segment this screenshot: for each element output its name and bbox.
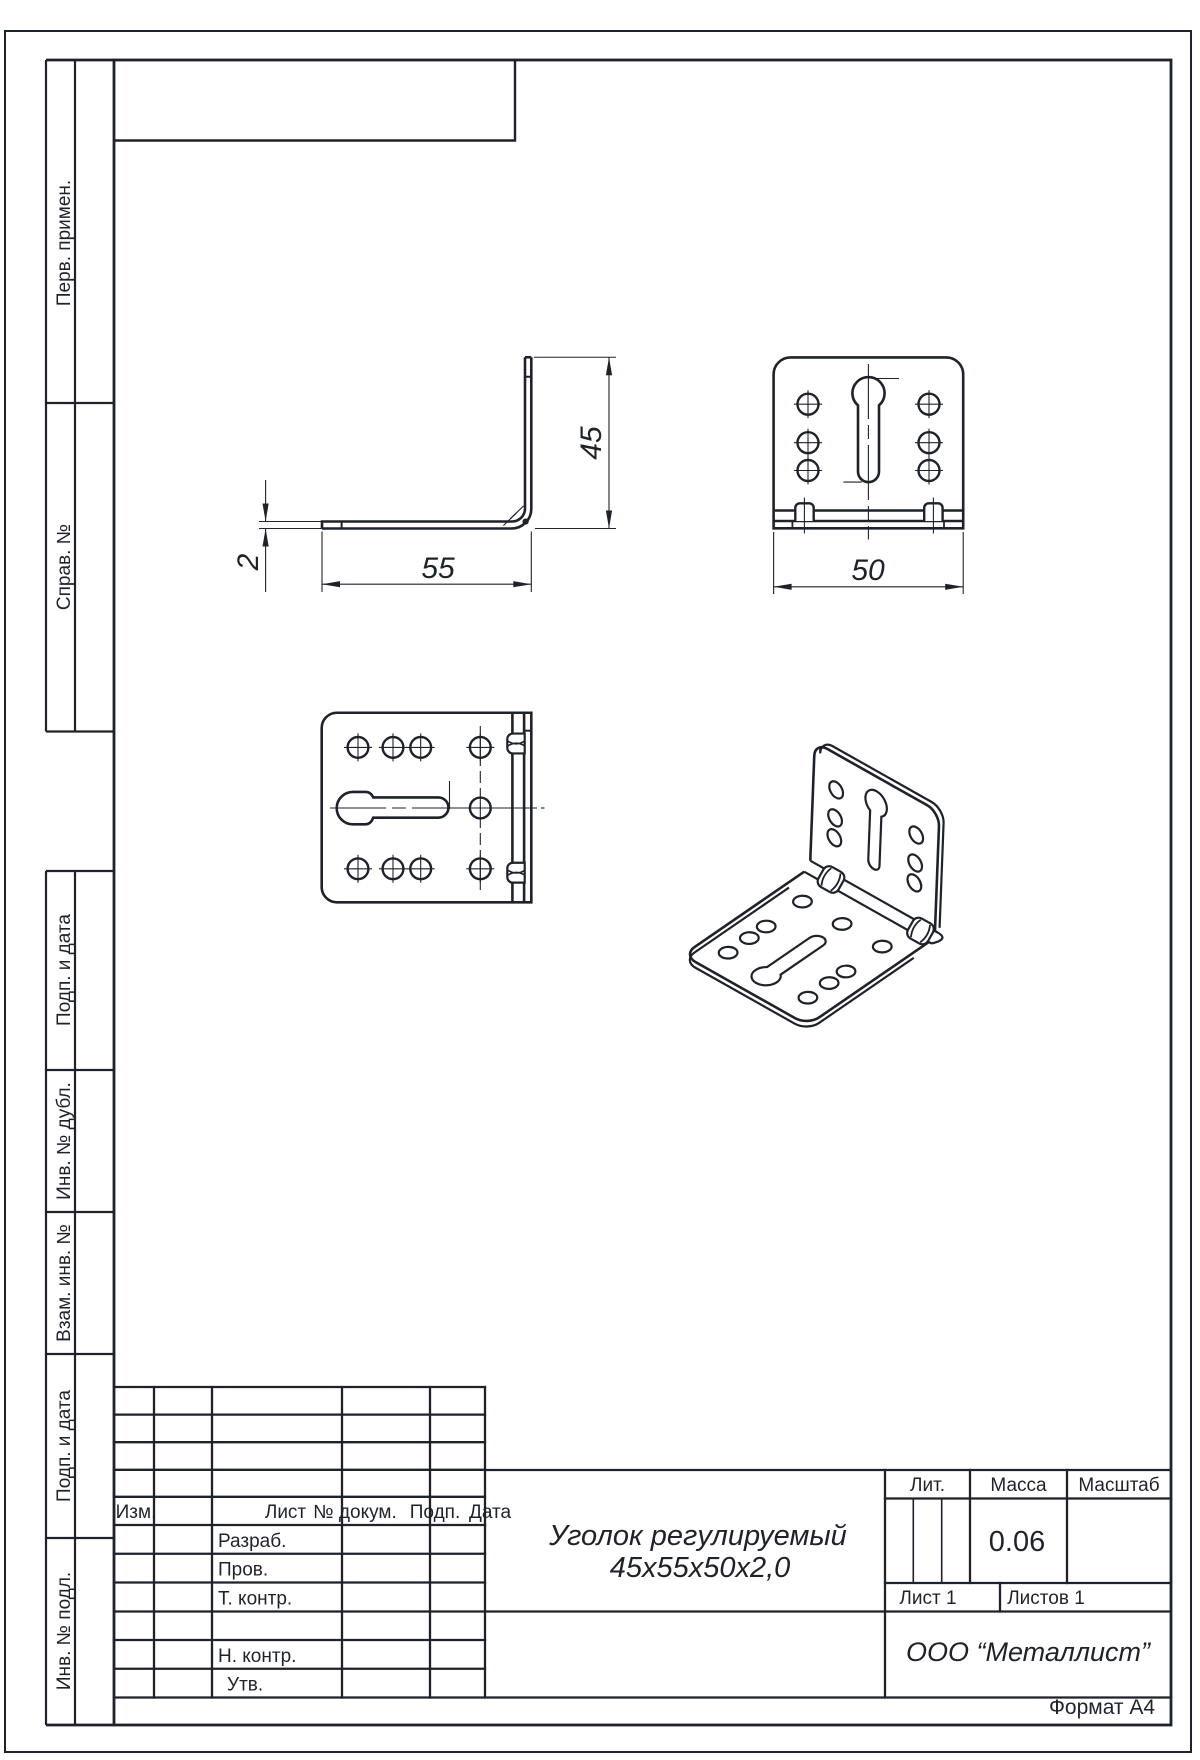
- svg-text:ООО “Металлист”: ООО “Металлист”: [906, 1637, 1151, 1667]
- svg-text:Лист: Лист: [265, 1502, 307, 1523]
- svg-text:2: 2: [232, 553, 265, 571]
- svg-text:Листов 1: Листов 1: [1007, 1588, 1085, 1609]
- svg-text:Изм.: Изм.: [116, 1502, 157, 1523]
- svg-text:45: 45: [575, 426, 608, 460]
- svg-text:Разраб.: Разраб.: [218, 1531, 286, 1552]
- svg-text:Справ. №: Справ. №: [54, 524, 75, 610]
- svg-text:Подп. и дата: Подп. и дата: [54, 914, 75, 1026]
- svg-text:Лист 1: Лист 1: [899, 1588, 956, 1609]
- svg-text:Формат А4: Формат А4: [1049, 1696, 1155, 1719]
- svg-text:№ докум.: № докум.: [313, 1502, 396, 1523]
- svg-text:Подп. и дата: Подп. и дата: [54, 1390, 75, 1502]
- svg-text:Т. контр.: Т. контр.: [218, 1589, 292, 1610]
- svg-text:Перв. примен.: Перв. примен.: [54, 180, 75, 306]
- svg-text:Подп.: Подп.: [410, 1502, 460, 1523]
- svg-text:Инв. № дубл.: Инв. № дубл.: [54, 1082, 75, 1200]
- svg-text:Н. контр.: Н. контр.: [218, 1646, 296, 1667]
- svg-text:Лит.: Лит.: [910, 1475, 945, 1496]
- svg-text:Масштаб: Масштаб: [1078, 1475, 1159, 1496]
- svg-text:55: 55: [421, 552, 455, 585]
- svg-text:Пров.: Пров.: [218, 1560, 268, 1581]
- svg-text:Масса: Масса: [990, 1475, 1047, 1496]
- svg-text:Инв. № подл.: Инв. № подл.: [54, 1572, 75, 1690]
- svg-text:Утв.: Утв.: [227, 1675, 263, 1696]
- svg-text:45х55х50х2,0: 45х55х50х2,0: [610, 1552, 791, 1584]
- svg-text:Дата: Дата: [469, 1502, 512, 1523]
- svg-text:50: 50: [851, 554, 885, 587]
- svg-text:Уголок регулируемый: Уголок регулируемый: [548, 1520, 847, 1552]
- svg-text:Взам. инв. №: Взам. инв. №: [54, 1224, 75, 1342]
- svg-text:0.06: 0.06: [989, 1526, 1045, 1558]
